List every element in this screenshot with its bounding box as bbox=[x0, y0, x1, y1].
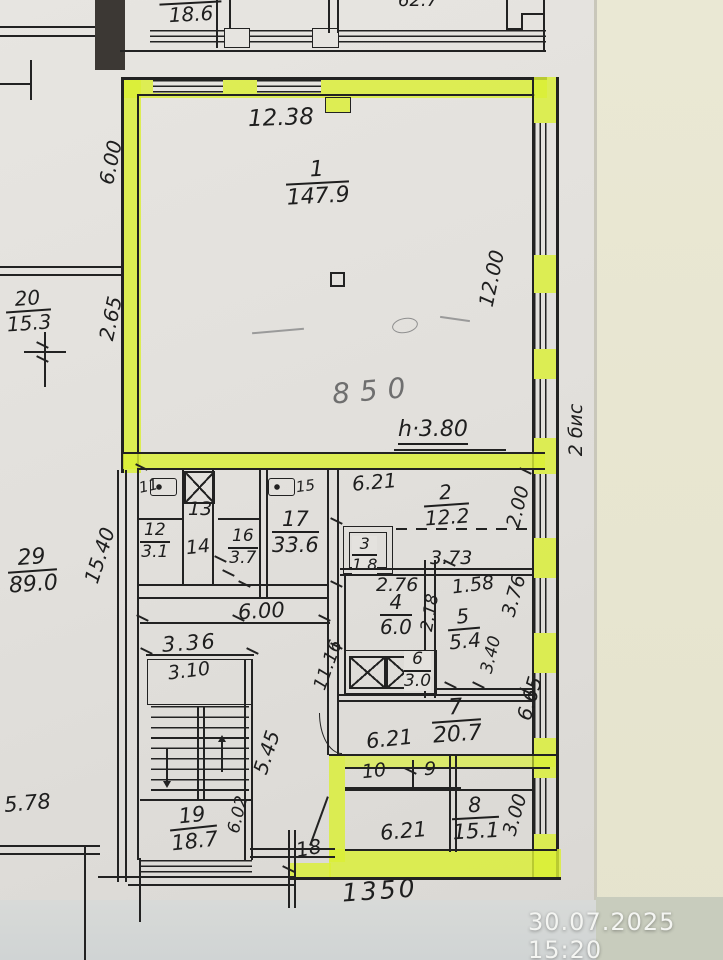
wall-segment bbox=[337, 694, 534, 696]
dim-room1-height: 12.00 bbox=[475, 247, 508, 310]
room17-label: 17 33.6 bbox=[272, 508, 319, 556]
dim-corridor-len: 11.16 bbox=[311, 637, 347, 694]
room12-area: 3.1 bbox=[140, 543, 170, 562]
room29-area: 89.0 bbox=[8, 570, 59, 597]
highlight-bottom-wall bbox=[329, 849, 561, 879]
wall-top-outer bbox=[121, 77, 547, 80]
scribble-dash bbox=[440, 316, 470, 322]
room17-number: 17 bbox=[272, 508, 319, 533]
wall-segment bbox=[521, 13, 523, 30]
room7-area: 20.7 bbox=[432, 720, 483, 747]
wall-pier-dark bbox=[95, 0, 125, 70]
paper-edge-right bbox=[596, 0, 723, 960]
wall-segment bbox=[137, 468, 545, 470]
room5-label: 5 5.4 bbox=[446, 605, 482, 654]
highlight-pier bbox=[532, 255, 558, 293]
dim-left-lower: 15.40 bbox=[81, 524, 120, 588]
dim-room8-depth: 3.00 bbox=[499, 787, 532, 842]
room2-area: 12.2 bbox=[424, 504, 470, 529]
window-lines bbox=[153, 80, 223, 93]
height-note: h·3.80 bbox=[398, 418, 468, 445]
dim-stair-depth: 5.45 bbox=[249, 724, 286, 782]
stair-arrow-line bbox=[166, 748, 168, 782]
stair-divider bbox=[197, 706, 199, 800]
room1-area: 147.9 bbox=[286, 182, 350, 209]
room29-number: 29 bbox=[6, 544, 57, 573]
paper-edge-line bbox=[594, 0, 597, 960]
highlight-mid-wall bbox=[123, 452, 545, 469]
wall-segment bbox=[329, 754, 557, 756]
wall-segment bbox=[84, 845, 86, 960]
stair-arrow-up-icon bbox=[218, 735, 226, 742]
room5-area: 5.4 bbox=[448, 629, 482, 654]
room3-number: 3 bbox=[352, 536, 377, 556]
column-symbol bbox=[330, 272, 345, 287]
dim-room2-width: 6.21 bbox=[351, 470, 397, 495]
wall-segment bbox=[337, 0, 339, 33]
wall-segment bbox=[0, 35, 96, 37]
room6-number: 6 bbox=[404, 651, 431, 672]
margin-note: 2 бис bbox=[567, 398, 587, 462]
dim-room2-depth: 2.00 bbox=[503, 479, 535, 534]
window-lines bbox=[534, 778, 547, 834]
highlight-pier bbox=[532, 77, 558, 123]
dim-line bbox=[146, 654, 254, 656]
dim-373: 3.73 bbox=[430, 549, 472, 569]
wall-segment bbox=[345, 789, 535, 791]
room20-label: 20 15.3 bbox=[4, 287, 52, 336]
wall-left-inner bbox=[137, 96, 139, 472]
room-label-upper-right: 62.7 bbox=[398, 0, 438, 11]
room19-label: 19 18.7 bbox=[168, 802, 220, 855]
dim-158: 1.58 bbox=[451, 573, 495, 598]
highlight-vert-low bbox=[329, 756, 345, 862]
room4-label: 4 6.0 bbox=[380, 592, 412, 638]
room4-number: 4 bbox=[380, 592, 412, 616]
photo-timestamp: 30.07.2025 15:20 bbox=[528, 908, 723, 960]
stair-divider bbox=[203, 706, 205, 800]
wall-segment bbox=[250, 856, 335, 858]
window-lines bbox=[534, 379, 547, 438]
dim-340: 3.40 bbox=[478, 629, 507, 680]
wall-segment bbox=[340, 574, 534, 576]
floorplan-photo: 18.6 62.7 12.38 1 bbox=[0, 0, 723, 960]
room17-area: 33.6 bbox=[272, 533, 319, 556]
window-lines bbox=[534, 578, 547, 633]
dim-376: 3.76 bbox=[499, 569, 532, 623]
wall-segment bbox=[506, 0, 508, 30]
underline-segment bbox=[394, 449, 506, 451]
room12-number: 12 bbox=[140, 522, 170, 543]
wall-segment bbox=[125, 470, 127, 882]
shaft-cross-icon bbox=[349, 656, 386, 689]
dim-room7-width: 6.21 bbox=[365, 726, 414, 753]
wall-segment bbox=[543, 0, 545, 52]
wall-segment bbox=[0, 266, 121, 268]
window-lines bbox=[150, 30, 546, 43]
window-lines bbox=[534, 123, 547, 255]
room15-label: 15 bbox=[295, 478, 316, 496]
room8-label: 8 15.1 bbox=[451, 793, 500, 843]
room12-label: 12 3.1 bbox=[140, 522, 170, 562]
room6-area: 3.0 bbox=[404, 672, 431, 691]
dim-room8-width: 6.21 bbox=[379, 818, 428, 844]
dim-218: 2.18 bbox=[418, 589, 444, 637]
window-lines bbox=[257, 80, 321, 93]
stair-arrow-line bbox=[221, 742, 223, 772]
wall-segment bbox=[0, 26, 96, 28]
dim-left-bottom: 5.78 bbox=[3, 790, 52, 816]
scribble-ellipse bbox=[391, 316, 419, 335]
room9-label: 9 bbox=[424, 760, 436, 780]
wall-segment bbox=[250, 848, 335, 850]
room6-label: 6 3.0 bbox=[404, 651, 431, 691]
highlight-pier bbox=[532, 538, 558, 578]
dim-line bbox=[140, 622, 330, 624]
room7-number: 7 bbox=[430, 694, 481, 723]
room10-label: 10 bbox=[361, 761, 387, 783]
wall-segment bbox=[98, 876, 296, 878]
room19-area: 18.7 bbox=[170, 827, 219, 855]
room8-area: 15.1 bbox=[452, 818, 500, 843]
room8-number: 8 bbox=[451, 793, 499, 820]
wall-segment bbox=[294, 830, 296, 908]
highlight-pier bbox=[532, 633, 558, 673]
wall-segment bbox=[345, 849, 557, 851]
window-pier bbox=[224, 28, 250, 48]
room3-area: 1.8 bbox=[352, 556, 377, 574]
wall-segment bbox=[30, 60, 32, 100]
wall-segment bbox=[139, 584, 327, 586]
room2-label: 2 12.2 bbox=[422, 481, 470, 530]
room14-label: 14 bbox=[185, 537, 211, 559]
room-label-upper-left: 18.6 bbox=[159, 0, 222, 26]
wall-segment bbox=[259, 470, 261, 598]
room16-number: 16 bbox=[228, 528, 258, 549]
highlight-stub bbox=[325, 97, 351, 113]
scribble-dash bbox=[252, 328, 304, 335]
wall-segment bbox=[123, 452, 545, 454]
wall-top-inner bbox=[137, 94, 535, 96]
dim-line bbox=[24, 351, 66, 353]
paper-bottom-strip bbox=[0, 900, 596, 960]
wall-segment bbox=[289, 877, 561, 880]
dim-tick bbox=[36, 355, 48, 362]
window-pier bbox=[312, 28, 339, 48]
dim-tick bbox=[222, 569, 234, 576]
room13-label: 13 bbox=[188, 500, 212, 520]
wall-segment bbox=[328, 0, 330, 33]
room4-area: 6.0 bbox=[380, 616, 412, 638]
highlight-pier bbox=[532, 349, 558, 379]
room1-label: 1 147.9 bbox=[285, 156, 351, 209]
dim-bottom-total: 1350 bbox=[341, 875, 418, 906]
wall-segment bbox=[137, 470, 139, 860]
room16-area: 3.7 bbox=[228, 549, 258, 568]
dim-tick bbox=[214, 555, 226, 562]
wall-segment bbox=[139, 597, 327, 599]
room1-number: 1 bbox=[285, 156, 349, 185]
window-lines bbox=[534, 293, 547, 349]
room7-label: 7 20.7 bbox=[430, 694, 482, 747]
dim-tick bbox=[36, 341, 48, 348]
wall-segment bbox=[0, 274, 121, 276]
stair-arrow-down-icon bbox=[163, 781, 171, 788]
wall-right-outer bbox=[556, 77, 559, 880]
wall-segment bbox=[117, 470, 119, 882]
room16-label: 16 3.7 bbox=[228, 528, 258, 568]
wall-segment bbox=[412, 760, 414, 788]
wall-segment bbox=[521, 13, 545, 15]
dashed-partition bbox=[396, 528, 536, 530]
dim-top-width: 12.38 bbox=[248, 105, 315, 131]
wall-segment bbox=[128, 884, 296, 886]
handwritten-note: 850 bbox=[331, 372, 417, 409]
window-lines bbox=[140, 860, 252, 873]
room29-label: 29 89.0 bbox=[6, 544, 58, 597]
dim-stair-width: 3.36 bbox=[161, 630, 217, 656]
door-arc bbox=[319, 713, 342, 754]
wall-segment bbox=[120, 50, 546, 52]
wall-segment bbox=[218, 518, 260, 520]
wall-segment bbox=[0, 83, 32, 85]
toilet-icon bbox=[268, 478, 295, 496]
